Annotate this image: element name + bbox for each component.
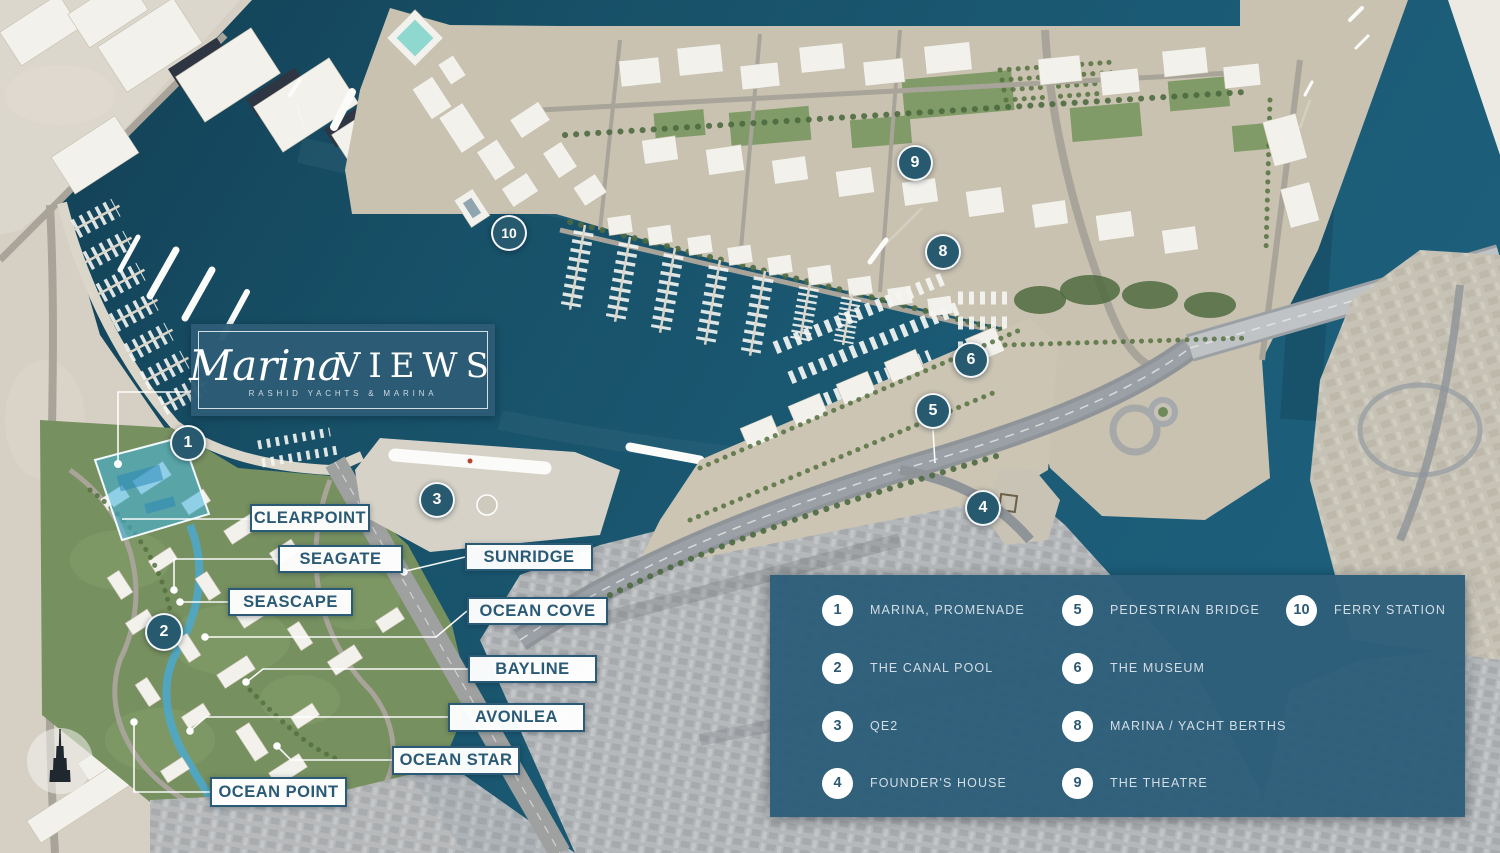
map-marker-10[interactable]: 10: [491, 215, 527, 251]
map-marker-4[interactable]: 4: [965, 490, 1001, 526]
logo-tagline: RASHID YACHTS & MARINA: [249, 389, 438, 398]
project-logo: Marina VIEWS RASHID YACHTS & MARINA: [191, 324, 495, 416]
map-marker-2[interactable]: 2: [145, 613, 183, 651]
logo-caps-text: VIEWS: [336, 349, 497, 383]
legend-num-9: 9: [1062, 768, 1093, 799]
map-marker-1[interactable]: 1: [170, 425, 206, 461]
legend-item-museum: 6 THE MUSEUM: [1062, 652, 1205, 684]
legend-num-5: 5: [1062, 595, 1093, 626]
logo-wordmark: Marina VIEWS: [189, 342, 497, 384]
map-marker-6[interactable]: 6: [953, 342, 989, 378]
burj-khalifa-badge: [27, 728, 93, 794]
legend-num-2: 2: [822, 653, 853, 684]
legend-num-4: 4: [822, 768, 853, 799]
legend-item-marina-promenade: 1 MARINA, PROMENADE: [822, 594, 1025, 626]
logo-script-text: Marina: [189, 345, 343, 387]
legend-item-canal-pool: 2 THE CANAL POOL: [822, 652, 993, 684]
label-ocean-star[interactable]: OCEAN STAR: [392, 746, 520, 775]
label-clearpoint[interactable]: CLEARPOINT: [250, 504, 370, 532]
legend-num-6: 6: [1062, 653, 1093, 684]
legend-num-1: 1: [822, 595, 853, 626]
legend-item-theatre: 9 THE THEATRE: [1062, 767, 1208, 799]
legend-item-pedestrian-bridge: 5 PEDESTRIAN BRIDGE: [1062, 594, 1260, 626]
legend-item-yacht-berths: 8 MARINA / YACHT BERTHS: [1062, 710, 1286, 742]
map-marker-5[interactable]: 5: [915, 393, 951, 429]
label-ocean-cove[interactable]: OCEAN COVE: [467, 597, 608, 625]
legend-item-founders-house: 4 FOUNDER'S HOUSE: [822, 767, 1007, 799]
label-seascape[interactable]: SEASCAPE: [228, 588, 353, 616]
masterplan-map: Marina VIEWS RASHID YACHTS & MARINA CLEA…: [0, 0, 1500, 853]
label-ocean-point[interactable]: OCEAN POINT: [210, 777, 347, 807]
legend-num-3: 3: [822, 711, 853, 742]
map-marker-9[interactable]: 9: [897, 145, 933, 181]
legend-item-qe2: 3 QE2: [822, 710, 898, 742]
label-avonlea[interactable]: AVONLEA: [448, 703, 585, 732]
label-bayline[interactable]: BAYLINE: [468, 655, 597, 683]
map-marker-3[interactable]: 3: [419, 482, 455, 518]
legend-num-10: 10: [1286, 595, 1317, 626]
map-marker-8[interactable]: 8: [925, 234, 961, 270]
burj-khalifa-icon: [27, 728, 93, 794]
legend-panel: 1 MARINA, PROMENADE 2 THE CANAL POOL 3 Q…: [770, 575, 1465, 817]
legend-num-8: 8: [1062, 711, 1093, 742]
legend-item-ferry-station: 10 FERRY STATION: [1286, 594, 1446, 626]
label-sunridge[interactable]: SUNRIDGE: [465, 543, 593, 571]
label-seagate[interactable]: SEAGATE: [278, 545, 403, 573]
